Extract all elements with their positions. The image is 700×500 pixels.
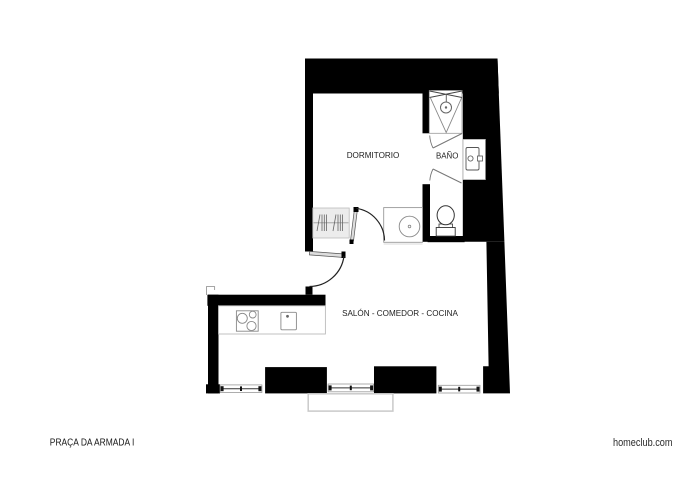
svg-text:PRAÇA DA ARMADA I: PRAÇA DA ARMADA I xyxy=(50,437,135,449)
svg-text:DORMITORIO: DORMITORIO xyxy=(347,151,400,160)
svg-text:homeclub.com: homeclub.com xyxy=(613,437,673,449)
svg-text:BAÑO: BAÑO xyxy=(436,150,459,160)
svg-text:SALÓN - COMEDOR - COCINA: SALÓN - COMEDOR - COCINA xyxy=(342,308,458,318)
